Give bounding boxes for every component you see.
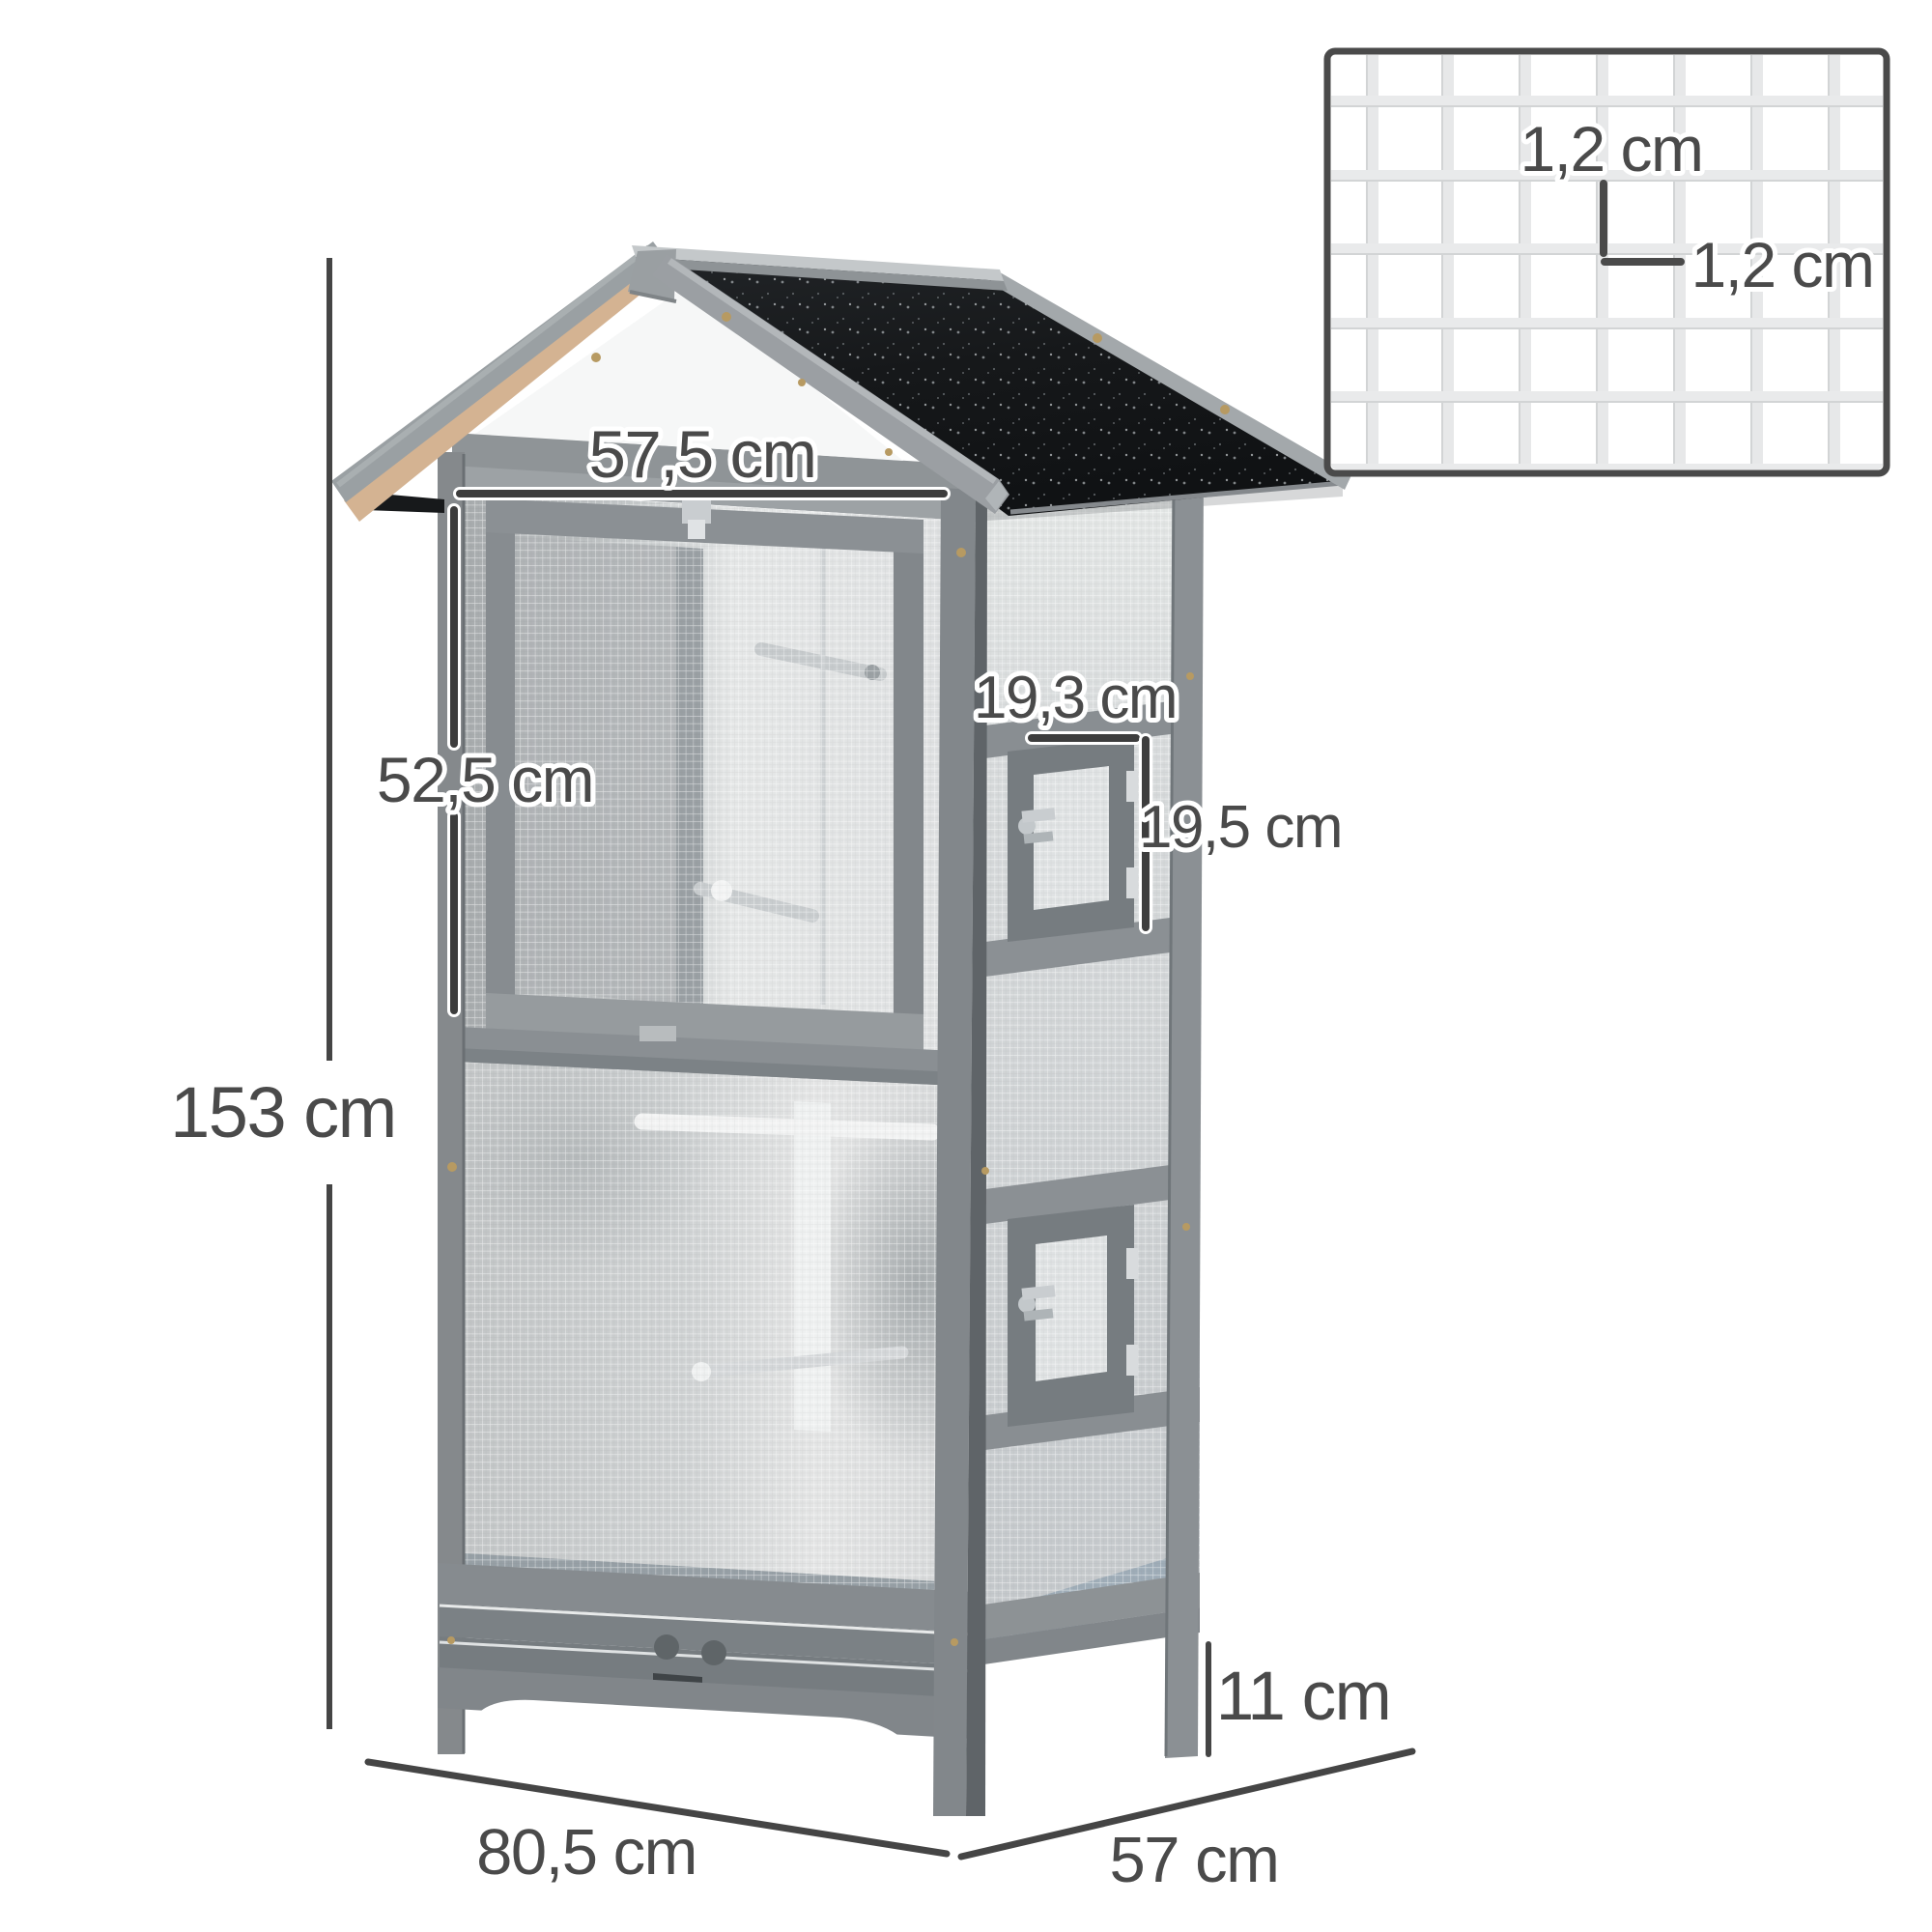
svg-text:80,5 cm: 80,5 cm (476, 1816, 696, 1889)
svg-text:57 cm: 57 cm (1110, 1824, 1279, 1896)
svg-text:1,2 cm: 1,2 cm (1520, 113, 1702, 185)
svg-text:1,2 cm: 1,2 cm (1690, 229, 1873, 300)
svg-text:57,5 cm: 57,5 cm (589, 417, 816, 492)
svg-text:11 cm: 11 cm (1216, 1659, 1391, 1735)
svg-text:153 cm: 153 cm (170, 1072, 396, 1152)
svg-text:19,3 cm: 19,3 cm (974, 665, 1177, 731)
svg-text:19,5 cm: 19,5 cm (1139, 794, 1342, 861)
svg-text:52,5 cm: 52,5 cm (377, 744, 593, 815)
